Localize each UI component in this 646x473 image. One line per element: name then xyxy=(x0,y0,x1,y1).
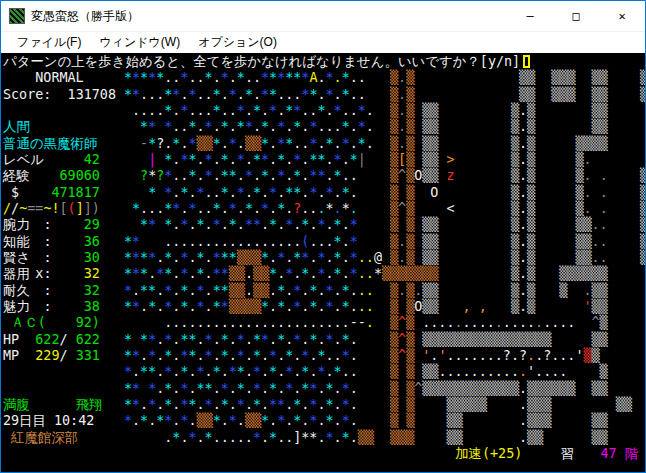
overlay-text: 622 xyxy=(35,332,59,348)
overlay-text: HP xyxy=(3,332,19,348)
overlay-text: 29 xyxy=(84,217,100,233)
overlay-text: : xyxy=(43,299,51,315)
app-window: 変愚蛮怒（勝手版） —□✕ ファイル(F)ウィンドウ(W)オプション(O) **… xyxy=(0,0,646,473)
map-row: ** *.*.*.**.*.*.*.*.*.**.*.*. ▒ ▒^▒▒▒▒▒▒… xyxy=(3,381,645,397)
overlay-text: NORMAL xyxy=(35,70,83,86)
overlay-text: 29日目 10:42 xyxy=(3,413,94,429)
overlay-text: Score: xyxy=(3,87,51,103)
overlay-text: 69060 xyxy=(60,168,100,184)
overlay-text: 知能 xyxy=(3,234,30,250)
overlay-text: / xyxy=(60,348,68,364)
overlay-text: MP xyxy=(3,348,19,364)
overlay-text: / xyxy=(3,201,11,217)
minimize-button[interactable]: — xyxy=(507,1,553,31)
overlay-text: : xyxy=(43,283,51,299)
overlay-text: 普通の黒魔術師 xyxy=(3,136,97,152)
close-icon: ✕ xyxy=(618,9,625,23)
overlay-text: / xyxy=(60,332,68,348)
overlay-text: 耐久 xyxy=(3,283,30,299)
overlay-text: 器用 xyxy=(3,266,30,282)
overlay-text: ~ xyxy=(19,201,27,217)
menu-item-0[interactable]: ファイル(F) xyxy=(8,32,90,54)
text-cursor xyxy=(523,55,530,68)
overlay-text: 622 xyxy=(76,332,100,348)
overlay-text: 331 xyxy=(76,348,100,364)
overlay-text: ! xyxy=(51,201,59,217)
maximize-icon: □ xyxy=(572,9,579,23)
overlay-text: ~ xyxy=(43,201,51,217)
overlay-text: 32 xyxy=(84,266,100,282)
overlay-text: : xyxy=(43,234,51,250)
title-bar[interactable]: 変愚蛮怒（勝手版） —□✕ xyxy=(1,1,645,31)
overlay-text: 36 xyxy=(84,234,100,250)
overlay-text: 32 xyxy=(84,283,100,299)
overlay-text: 30 xyxy=(84,250,100,266)
close-button[interactable]: ✕ xyxy=(599,1,645,31)
game-screen[interactable]: *****..*..*.*.*..******A.*.*.. ▒.▒ ▒▒ ▒▒… xyxy=(1,53,645,472)
map-row xyxy=(3,446,645,462)
overlay-text: 加速(+25) xyxy=(455,446,522,462)
overlay-text: : xyxy=(43,250,51,266)
overlay-text: ) xyxy=(92,201,100,217)
map-row: *.**.*.*.*.*.**.*.*.*.*.*.*.. ▒ ▒ ▒▒....… xyxy=(3,364,645,380)
overlay-text: 魅力 xyxy=(3,299,30,315)
overlay-text: 47 階 xyxy=(601,446,639,462)
maximize-button[interactable]: □ xyxy=(553,1,599,31)
overlay-text: == xyxy=(27,201,43,217)
map-row: .*.*.*.....*.*..]**.*.*.▒▒ ▒▒▒ ▒▒ .▒▒ ▒▒ xyxy=(3,430,645,446)
map-row: ....*.*...*..*.*.*.**..*.*..*. ▒.▒ ▒▒ ▒.… xyxy=(3,103,645,119)
map-row: *****..*..*.*.*..******A.*.*.. ▒.▒ ▒▒ ▒▒… xyxy=(3,70,645,86)
overlay-text: 471817 xyxy=(51,185,99,201)
overlay-text: 92) xyxy=(76,315,100,331)
menu-bar: ファイル(F)ウィンドウ(W)オプション(O) xyxy=(1,31,645,53)
overlay-text: 38 xyxy=(84,299,100,315)
map-row: *.*.**.*.▒▒*.*.▒▒*.*.*.*.*.*. ▒ ▒ ▒▒ .▒▒… xyxy=(3,413,645,429)
overlay-text: 経験 xyxy=(3,168,30,184)
overlay-text: x xyxy=(35,266,43,282)
app-icon xyxy=(9,8,25,24)
overlay-text: 紅魔館深部 xyxy=(11,430,78,446)
map-row: ** *..*.*.*.**.*.*.*.*...*.*. ▒.▒ ▒▒ ▒.▒… xyxy=(3,119,645,135)
overlay-text: 229 xyxy=(35,348,59,364)
overlay-text: ( xyxy=(68,201,76,217)
overlay-text: レベル xyxy=(3,152,44,168)
overlay-text: ＡＣ( xyxy=(11,315,46,331)
overlay-text: 腕力 xyxy=(3,217,30,233)
overlay-text: 人間 xyxy=(3,119,30,135)
overlay-text: 131708 xyxy=(68,87,116,103)
overlay-text: 42 xyxy=(84,152,100,168)
menu-item-2[interactable]: オプション(O) xyxy=(189,32,286,54)
overlay-text: : xyxy=(43,266,51,282)
window-title: 変愚蛮怒（勝手版） xyxy=(31,8,139,25)
overlay-text: ] xyxy=(76,201,84,217)
window-controls: —□✕ xyxy=(507,1,645,31)
menu-item-1[interactable]: ウィンドウ(W) xyxy=(90,32,189,54)
overlay-text: 賢さ xyxy=(3,250,30,266)
overlay-text: / xyxy=(11,201,19,217)
map-row: -*?.*.*▒▒*.*.▒▒*.**..*.*.*.*. ▒.▒ ▒▒ ▒.▒… xyxy=(3,136,645,152)
minimize-icon: — xyxy=(526,9,533,23)
overlay-text: : xyxy=(43,217,51,233)
overlay-text: [ xyxy=(60,201,68,217)
overlay-text: 満腹 xyxy=(3,397,30,413)
overlay-text: ] xyxy=(84,201,92,217)
prompt-message: パターンの上を歩き始めると、全てを歩かなければなりません。いいですか？[y/n] xyxy=(3,54,530,70)
overlay-text: 習 xyxy=(560,446,573,462)
overlay-text: $ xyxy=(11,185,19,201)
overlay-text: 飛翔 xyxy=(76,397,103,413)
